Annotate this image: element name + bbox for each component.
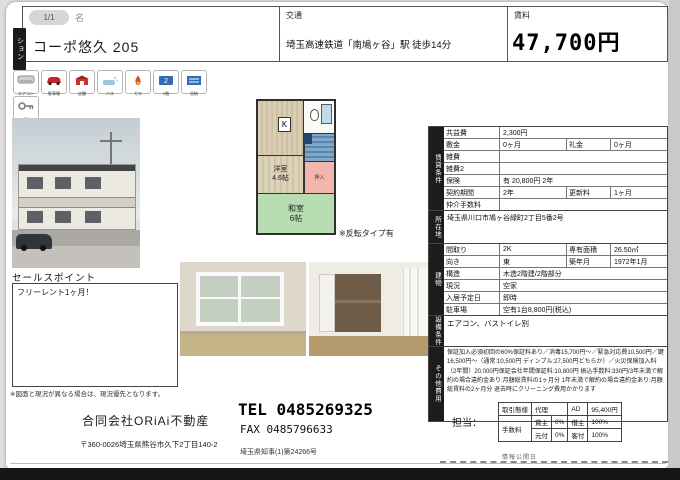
row-value: 1972年1月 [611,256,667,267]
row-value: 1ヶ月 [611,187,667,198]
kitchen-label: K [278,117,291,132]
photo-driveway [12,246,140,268]
row-label: 保険 [444,175,500,186]
section-equipment: 設備条件 エアコン、バストイレ別 [428,316,668,347]
transport-value: 埼玉高速鉄道「南鳩ヶ谷」駅 徒歩14分 [286,37,451,51]
closet-shelf [335,300,381,303]
tenant-label: 借主 [568,416,588,429]
row-label: 更新料 [567,187,611,198]
phone-number: TEL 0485269325 [238,400,373,419]
ad-value: 95,400円 [588,403,621,416]
closet-opening [335,274,381,332]
section-label-equipment: 設備条件 [429,316,444,346]
floorplan-western-room: 洋室 4.6帖 [258,156,304,194]
car-icon [45,73,63,91]
section-label-building: 建物 [429,244,444,315]
interior-photo-closet-room [309,262,428,356]
parking-tile: 駐車場 [41,70,67,94]
japanese-room-size: 6帖 [290,214,302,224]
flame-icon [129,73,147,91]
window-mullion [238,272,241,326]
row-label: 間取り [444,244,500,255]
footer-divider [10,463,666,464]
row-value: 0ヶ月 [611,139,667,150]
key-icon [17,99,35,117]
floor [180,334,306,356]
floorplan-bathroom [304,101,334,134]
row-value: 即時 [500,292,667,303]
svg-text:2: 2 [164,78,168,85]
property-type-tab: ション [13,28,26,70]
shop-label: 店舗 [78,92,86,96]
section-label-location: 所在地 [429,211,444,243]
japanese-room-label: 和室 [288,204,304,214]
row-label: 雑費 [444,151,500,162]
gas-label: ガス [134,92,142,96]
sales-point-box: フリーレント1ヶ月！ [12,283,178,387]
row-value: 東 [500,256,567,267]
row-value: 0ヶ月 [500,139,567,150]
row-value [500,199,667,210]
tenant-value: 100% [588,416,621,429]
row-value: 2,300円 [500,127,667,138]
parking-label: 駐車場 [48,92,60,96]
section-label-conditions: 賃貸条件 [429,127,444,210]
row-label: 専有面積 [567,244,611,255]
row-label: 礼金 [567,139,611,150]
floorplan-closet: 押入 [304,162,334,194]
row-label: 仲介手数料 [444,199,500,210]
rent-label: 賃料 [514,10,661,21]
western-room-label: 洋室 [274,166,288,174]
gas-tile: ガス [125,70,151,94]
header-name-cell: 1/1 名 コーポ悠久 205 [23,7,280,61]
floor-plan: K 洋室 4.6帖 押入 和室 6帖 [256,99,336,235]
sliding-door [319,274,335,332]
row-label: 築年月 [567,256,611,267]
row-label: 駐車場 [444,304,500,315]
second-floor-icon: 2 [157,73,175,91]
row-label: 契約期間 [444,187,500,198]
kyaku-label: 客付 [568,429,588,442]
curtain-fold [409,268,411,342]
bath-area [321,104,332,124]
details-tables: 賃貸条件 共益費2,300円 敷金0ヶ月礼金0ヶ月 雑費 雑費2 保険有 20,… [428,126,668,422]
moto-label: 元付 [532,429,552,442]
moto-value: 0% [552,429,568,442]
second-floor-tile: 2 2階 [153,70,179,94]
info-release-date: 情報公開日 [502,452,537,461]
disclaimer-note: ※図面と現況が異なる場合は、現況優先となります。 [10,388,164,398]
toilet-icon [310,109,319,121]
key-tile: 鍵 [13,96,39,120]
amenity-icon-row: エアコン 駐車場 店舗 バス ガス 2 2階 収納 鍵 [13,70,213,120]
property-address: 埼玉県川口市鳩ヶ谷緑町2丁目5番2号 [444,211,667,243]
floor [309,336,428,356]
deal-type-value: 代理 [532,403,568,416]
closet-icon [185,73,203,91]
exterior-photo [12,118,140,268]
kyaku-value: 100% [588,429,621,442]
header-rent-cell: 賃料 47,700円 [508,7,667,61]
section-label-other-costs: その他費用 [429,347,444,421]
row-value: 有 20,800円 2年 [500,175,667,186]
sales-point-text: フリーレント1ヶ月！ [13,284,177,301]
row-label: 向き [444,256,500,267]
western-room-size: 4.6帖 [272,175,289,183]
row-value: 26.50㎡ [611,244,667,255]
company-name: 合同会社ORiAi不動産 [82,412,209,429]
row-value [500,151,667,162]
curtain [403,268,428,342]
apartment-building [18,164,136,230]
aircon-tile: エアコン [13,70,39,94]
interior-photo-window-room [180,262,306,356]
company-address: 〒360-0026埼玉県熊谷市久下2丁目140-2 [80,440,232,450]
baseboard [180,331,306,334]
floorplan-note: ※反転タイプ有 [339,228,394,239]
staff-label: 担当： [452,414,482,429]
sales-point-title: セールスポイント [12,270,96,284]
row-label: 敷金 [444,139,500,150]
license-number: 埼玉県知事(1)第24266号 [240,447,317,457]
fax-number: FAX 0485796633 [240,423,333,436]
transport-label: 交通 [286,10,501,21]
property-flyer-page: 1/1 名 コーポ悠久 205 交通 埼玉高速鉄道「南鳩ヶ谷」駅 徒歩14分 賃… [0,0,680,480]
row-value: 空有1台8,800円(税込) [500,304,667,315]
row-value [500,163,667,174]
row-value: 空家 [500,280,667,291]
parked-car [16,234,52,249]
section-rent-conditions: 賃貸条件 共益費2,300円 敷金0ヶ月礼金0ヶ月 雑費 雑費2 保険有 20,… [428,126,668,211]
scan-edge [669,0,680,468]
header-transport-cell: 交通 埼玉高速鉄道「南鳩ヶ谷」駅 徒歩14分 [280,7,508,61]
shop-tile: 店舗 [69,70,95,94]
closet-label: 収納 [190,92,198,96]
dashed-cut-line [440,461,668,463]
property-name: コーポ悠久 205 [33,37,139,57]
equipment-text: エアコン、バストイレ別 [444,316,667,346]
row-label: 構造 [444,268,500,279]
closet-label: 押入 [314,174,324,181]
closet-tile: 収納 [181,70,207,94]
row-label: 現況 [444,280,500,291]
bath-label: バス [106,92,114,96]
fee-label: 手数料 [499,416,532,442]
section-location: 所在地 埼玉県川口市鳩ヶ谷緑町2丁目5番2号 [428,211,668,244]
landlord-value: 0% [552,416,568,429]
landlord-label: 貸主 [532,416,552,429]
transaction-table: 取引態様 代理 AD 95,400円 手数料 貸主 0% 借主 100% 元付 … [498,402,622,442]
row-value: 木造2階建/2階部分 [500,268,667,279]
row-label: 雑費2 [444,163,500,174]
bath-icon [101,73,119,91]
name-label-fragment: 名 [75,11,84,24]
header-table: 1/1 名 コーポ悠久 205 交通 埼玉高速鉄道「南鳩ヶ谷」駅 徒歩14分 賃… [22,6,668,62]
row-label: 入居予定日 [444,292,500,303]
second-floor-label: 2階 [163,92,169,96]
curtain-fold [417,268,419,342]
floorplan-stairs-landing [304,134,312,144]
floorplan-japanese-room: 和室 6帖 [258,194,334,233]
ad-label: AD [568,403,588,416]
row-label: 共益費 [444,127,500,138]
deal-type-label: 取引態様 [499,403,532,416]
window-rail [196,297,284,299]
section-building: 建物 間取り2K専有面積26.50㎡ 向き東築年月1972年1月 構造木造2階建… [428,244,668,316]
scan-bottom-bar [0,468,680,480]
page-count-badge: 1/1 [29,10,69,25]
bath-tile: バス [97,70,123,94]
row-value: 2年 [500,187,567,198]
utility-pole-arm [100,140,122,142]
rent-value: 47,700円 [512,25,620,57]
shop-icon [73,73,91,91]
row-value: 2K [500,244,567,255]
aircon-icon [17,73,35,91]
